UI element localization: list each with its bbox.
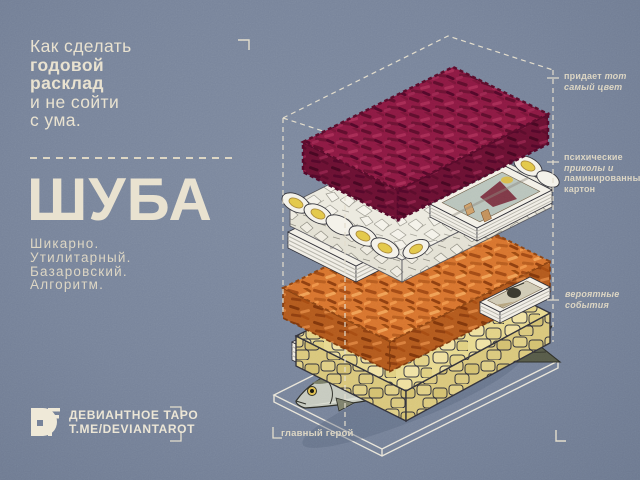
annotation-hero: главный герой bbox=[281, 429, 354, 440]
annotation-text: приколы и bbox=[564, 163, 614, 173]
headline: Как сделать годовой расклад и не сойти с… bbox=[30, 37, 132, 130]
logo-name: ДЕВИАНТНОЕ ТАРО bbox=[69, 408, 198, 422]
annotation-events: вероятные события bbox=[565, 289, 619, 310]
headline-line: Как сделать bbox=[30, 37, 132, 56]
annotation-text: тот bbox=[605, 71, 627, 81]
subtitle-line: Базаровский. bbox=[30, 265, 132, 279]
subtitle-line: Шикарно. bbox=[30, 237, 132, 251]
subtitle-line: Алгоритм. bbox=[30, 278, 132, 292]
annotation-text: события bbox=[565, 300, 609, 310]
headline-line: годовой bbox=[30, 56, 132, 75]
annotation-text: вероятные bbox=[565, 289, 619, 299]
annotation-text: психические bbox=[564, 152, 640, 163]
df-monogram-icon bbox=[30, 407, 61, 437]
annotation-text: ламинированный bbox=[564, 173, 640, 184]
poster-title: ШУБА bbox=[27, 168, 213, 232]
annotation-text: самый цвет bbox=[564, 82, 622, 92]
subtitle-list: Шикарно. Утилитарный. Базаровский. Алгор… bbox=[30, 237, 132, 292]
annotation-beet-color: придает тот самый цвет bbox=[564, 71, 627, 92]
annotation-cards: психические приколы и ламинированный кар… bbox=[564, 152, 640, 194]
subtitle-line: Утилитарный. bbox=[30, 251, 132, 265]
logo-text: ДЕВИАНТНОЕ ТАРО T.ME/DEVIANTAROT bbox=[69, 407, 198, 436]
annotation-text: картон bbox=[564, 184, 640, 195]
annotation-text: придает bbox=[564, 71, 602, 81]
logo: ДЕВИАНТНОЕ ТАРО T.ME/DEVIANTAROT bbox=[30, 407, 198, 437]
logo-url: T.ME/DEVIANTAROT bbox=[69, 422, 198, 436]
headline-line: расклад bbox=[30, 74, 132, 93]
headline-line: и не сойти bbox=[30, 93, 132, 112]
poster: { "poster": { "headline": { "line1": "Ка… bbox=[0, 0, 640, 480]
dashed-divider bbox=[30, 157, 234, 159]
headline-line: с ума. bbox=[30, 111, 132, 130]
